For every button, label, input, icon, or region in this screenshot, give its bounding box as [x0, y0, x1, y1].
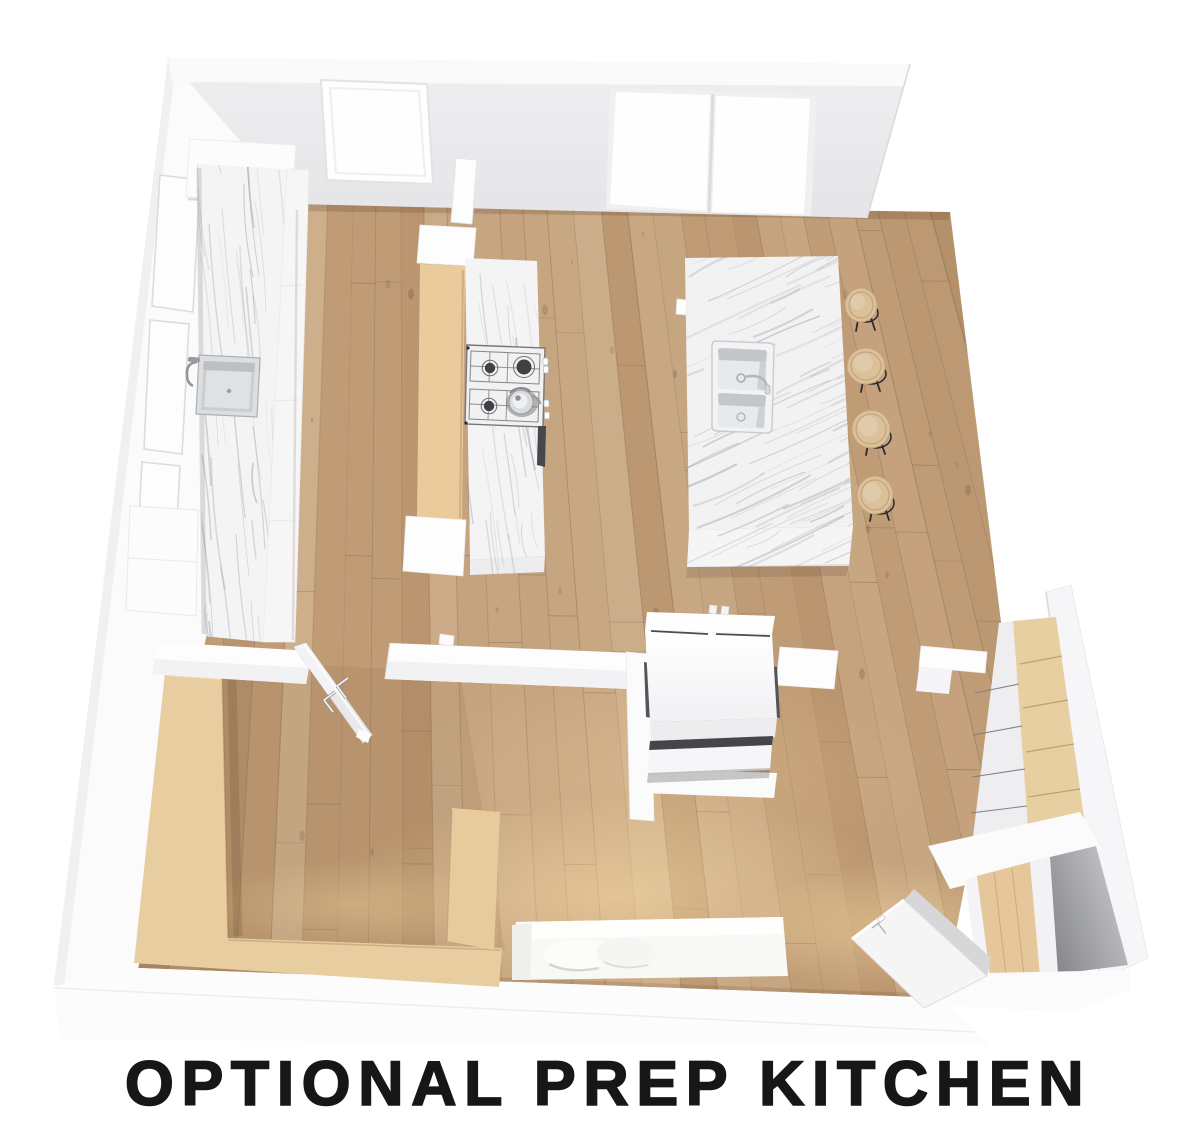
svg-text:OPTIONAL PREP KITCHEN: OPTIONAL PREP KITCHEN — [125, 1049, 1091, 1119]
